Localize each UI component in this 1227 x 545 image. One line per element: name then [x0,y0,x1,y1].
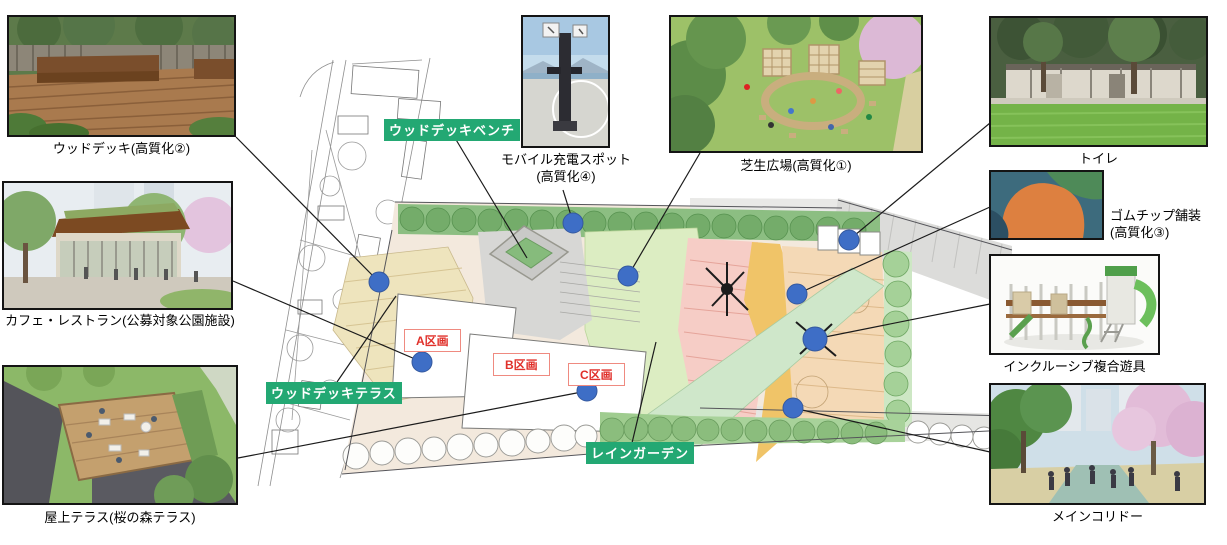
photo-mobile-charging [521,15,610,148]
photo-main-corridor [989,383,1206,505]
cafe-illustration [4,183,231,308]
charging-spot-illustration [523,17,608,146]
caption-wood-deck: ウッドデッキ(高質化②) [7,140,236,157]
tag-wood-deck-bench: ウッドデッキベンチ [384,119,520,141]
photo-rubber-chip [989,170,1104,240]
photo-inclusive-playground [989,254,1160,355]
caption-mobile-charging: モバイル充電スポット (高質化④) [486,151,646,185]
photo-wood-deck [7,15,236,137]
plot-label-c: C区画 [568,363,625,386]
corridor-illustration [991,385,1204,503]
tag-rain-garden: レインガーデン [586,442,694,464]
lawn-plaza-illustration [671,17,921,151]
caption-inclusive-playground: インクルーシブ複合遊具 [989,358,1160,375]
toilet-illustration [991,18,1206,145]
rubber-chip-illustration [991,172,1102,238]
wood-deck-illustration [9,17,234,135]
park-plan-infographic: ウッドデッキ(高質化②) カフェ・レストラン(公募対象公園施設) [0,0,1227,545]
photo-cafe-restaurant [2,181,233,310]
rooftop-illustration [4,367,236,503]
photo-lawn-plaza [669,15,923,153]
photo-rooftop-terrace [2,365,238,505]
caption-rubber-chip: ゴムチップ舗装 (高質化③) [1110,207,1222,241]
plot-label-a: A区画 [404,329,461,352]
caption-cafe-restaurant: カフェ・レストラン(公募対象公園施設) [0,312,240,329]
tag-wood-deck-terrace: ウッドデッキテラス [266,382,402,404]
plot-label-b: B区画 [493,353,550,376]
caption-rooftop-terrace: 屋上テラス(桜の森テラス) [2,509,238,526]
photo-toilet [989,16,1208,147]
playground-illustration [991,256,1158,353]
caption-toilet: トイレ [989,150,1208,167]
caption-main-corridor: メインコリドー [989,508,1206,525]
caption-lawn-plaza: 芝生広場(高質化①) [669,157,923,174]
